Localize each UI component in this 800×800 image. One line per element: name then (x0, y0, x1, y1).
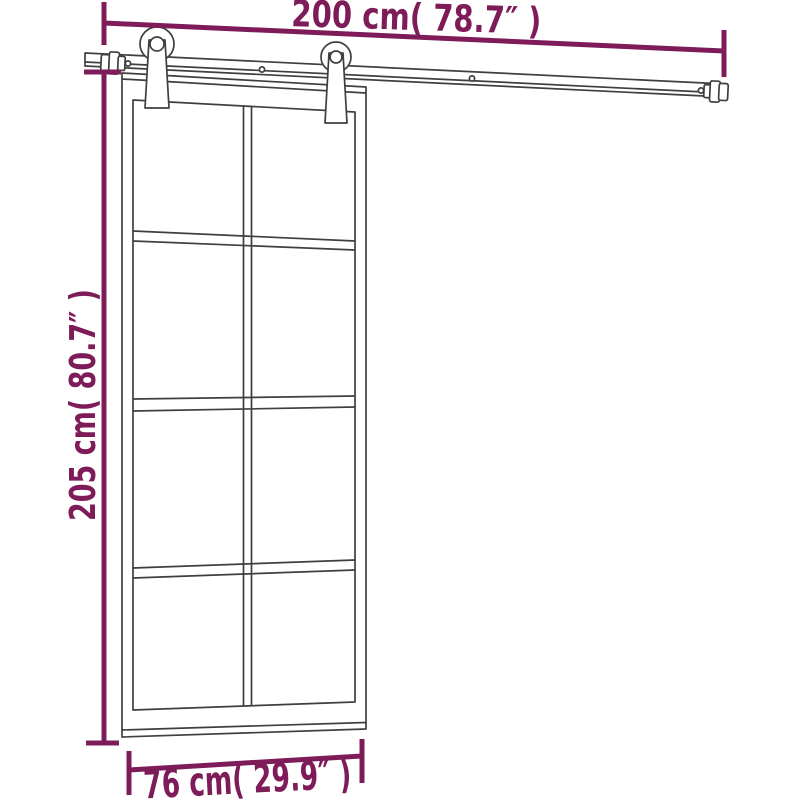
end-stop-neck (118, 56, 126, 70)
rail-end-stop-right (703, 81, 728, 103)
rail-screw-hole (698, 88, 703, 93)
dimension-door-height: 205 cm( 80.7″ ) (63, 70, 121, 745)
door-height-label: 205 cm( 80.7″ ) (63, 289, 104, 521)
dimension-door-width: 76 cm( 29.9″ ) (129, 739, 362, 800)
diagram-canvas: 200 cm( 78.7″ ) 205 cm( 80.7″ ) 76 cm( 2… (0, 0, 800, 800)
roller-hub-bolt (150, 37, 164, 51)
door (122, 73, 366, 737)
rail-screw-hole (469, 76, 474, 81)
hanger-right (321, 42, 351, 123)
rail-screw-hole (125, 61, 130, 66)
dimension-diagram: 200 cm( 78.7″ ) 205 cm( 80.7″ ) 76 cm( 2… (0, 0, 800, 800)
rail-screw-hole (259, 67, 264, 72)
track-width-label: 200 cm( 78.7″ ) (291, 0, 542, 43)
end-stop-cap (719, 83, 729, 100)
door-width-label: 76 cm( 29.9″ ) (142, 752, 352, 800)
roller-hub-bolt (330, 51, 342, 63)
